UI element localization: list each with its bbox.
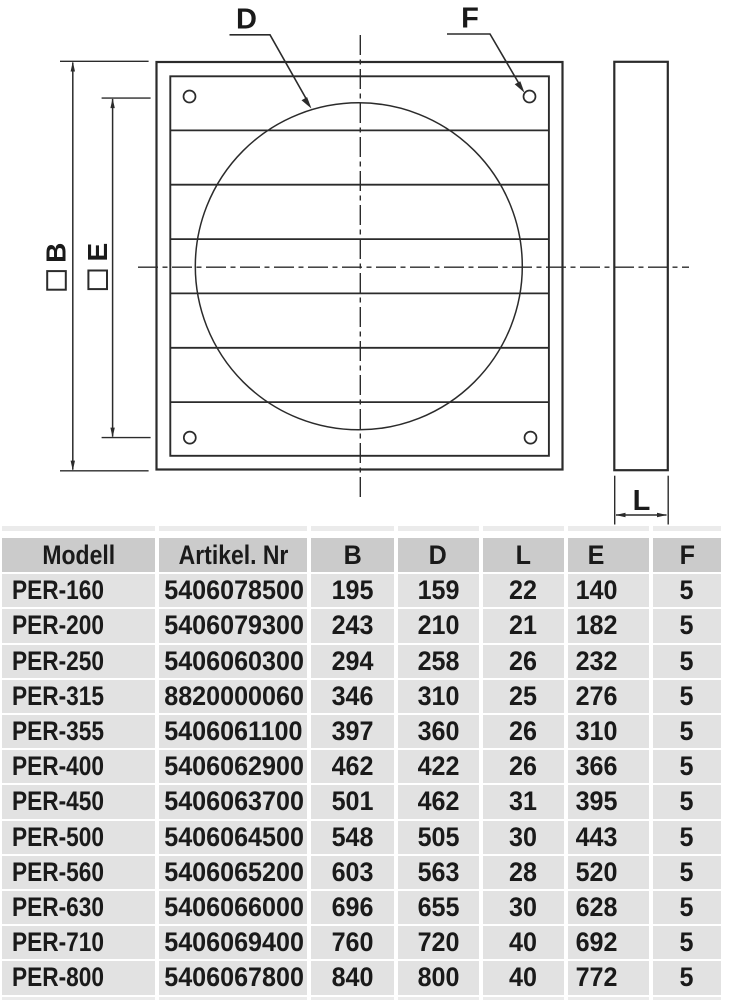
svg-text:B: B bbox=[41, 243, 72, 263]
svg-text:L: L bbox=[633, 485, 651, 517]
svg-text:E: E bbox=[82, 243, 113, 262]
svg-text:D: D bbox=[236, 4, 257, 36]
svg-text:F: F bbox=[461, 3, 479, 35]
